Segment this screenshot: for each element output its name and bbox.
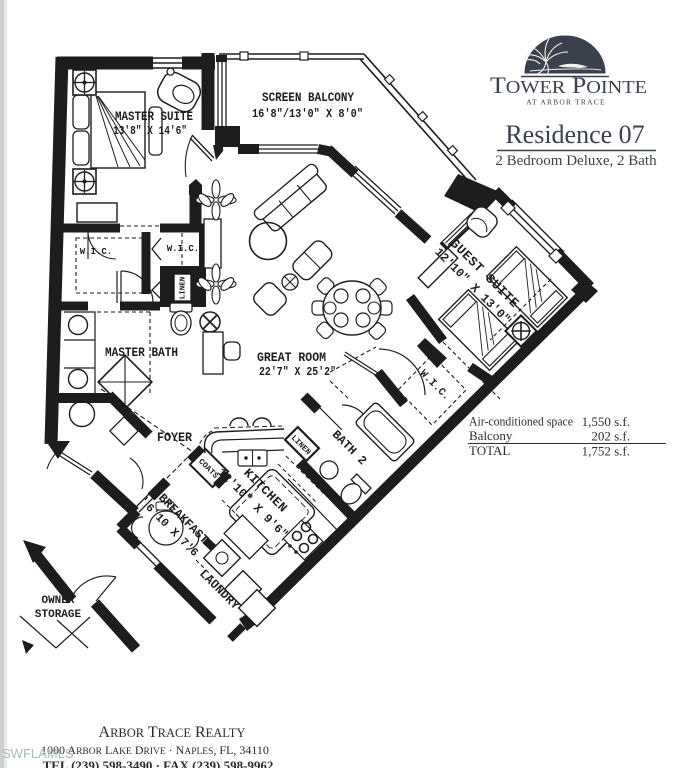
svg-text:MASTER SUITE: MASTER SUITE: [115, 110, 193, 124]
svg-text:2 Bedroom Deluxe, 2 Bath: 2 Bedroom Deluxe, 2 Bath: [495, 153, 657, 169]
svg-text:LINEN: LINEN: [179, 277, 187, 300]
svg-text:AT ARBOR TRACE: AT ARBOR TRACE: [526, 98, 605, 107]
svg-text:TOTAL: TOTAL: [469, 443, 510, 458]
svg-text:Air-conditioned space: Air-conditioned space: [469, 414, 573, 429]
svg-text:FOYER: FOYER: [157, 431, 192, 445]
svg-text:Residence 07: Residence 07: [505, 120, 644, 149]
svg-text:ARBOR TRACE REALTY: ARBOR TRACE REALTY: [99, 724, 246, 741]
svg-text:W.I.C.: W.I.C.: [80, 247, 112, 257]
svg-text:13'8" X 14'6": 13'8" X 14'6": [113, 124, 187, 138]
svg-text:GREAT ROOM: GREAT ROOM: [257, 351, 326, 365]
svg-text:16'8"/13'0" X 8'0": 16'8"/13'0" X 8'0": [252, 107, 363, 121]
svg-text:1,550 s.f.: 1,550 s.f.: [582, 414, 630, 429]
svg-text:1,752 s.f.: 1,752 s.f.: [582, 444, 630, 459]
svg-text:SCREEN BALCONY: SCREEN BALCONY: [262, 91, 354, 105]
svg-text:TOWER POINTE: TOWER POINTE: [490, 73, 647, 98]
svg-text:TEL (239) 598-3490 · FAX (239): TEL (239) 598-3490 · FAX (239) 598-9962: [43, 758, 274, 768]
svg-text:SWFLAMLS: SWFLAMLS: [2, 746, 74, 761]
svg-text:W.I.C.: W.I.C.: [167, 244, 199, 254]
svg-text:22'7" X 25'2": 22'7" X 25'2": [259, 365, 336, 379]
svg-text:MASTER BATH: MASTER BATH: [105, 346, 178, 360]
svg-text:STORAGE: STORAGE: [35, 609, 82, 621]
svg-text:Balcony: Balcony: [469, 428, 513, 443]
svg-text:202 s.f.: 202 s.f.: [591, 429, 630, 444]
svg-text:OWNER: OWNER: [41, 595, 74, 607]
